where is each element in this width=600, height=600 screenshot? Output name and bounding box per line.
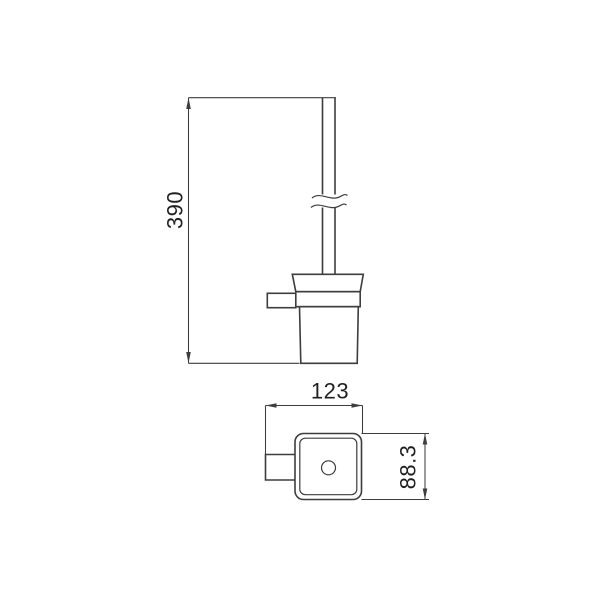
arrow-down-icon xyxy=(186,352,191,363)
break-symbol xyxy=(311,195,348,208)
arrow-left-icon xyxy=(266,403,277,408)
drawing-canvas: 390 123 xyxy=(0,0,600,600)
brush-handle xyxy=(323,98,336,275)
side-view: 390 xyxy=(163,98,364,364)
depth-dimension-label: 88.3 xyxy=(396,445,421,490)
wall-bracket-side xyxy=(267,293,296,307)
depth-dimension: 88.3 xyxy=(362,434,430,500)
arrow-down-icon xyxy=(423,489,428,500)
arrow-up-icon xyxy=(423,434,428,445)
holder-outer-square xyxy=(295,434,362,500)
arrow-right-icon xyxy=(352,403,363,408)
holder-band xyxy=(296,292,360,307)
arrow-up-icon xyxy=(186,98,191,109)
holder-cup xyxy=(300,307,359,364)
brush-holder-side xyxy=(267,98,363,364)
height-dimension-label: 390 xyxy=(163,191,188,229)
technical-drawing: 390 123 xyxy=(0,0,600,600)
holder-top-outline xyxy=(266,434,362,500)
wall-bracket-top xyxy=(266,455,296,481)
top-view: 123 88.3 xyxy=(266,379,430,500)
width-dimension-label: 123 xyxy=(311,379,349,404)
holder-rim xyxy=(292,274,363,291)
